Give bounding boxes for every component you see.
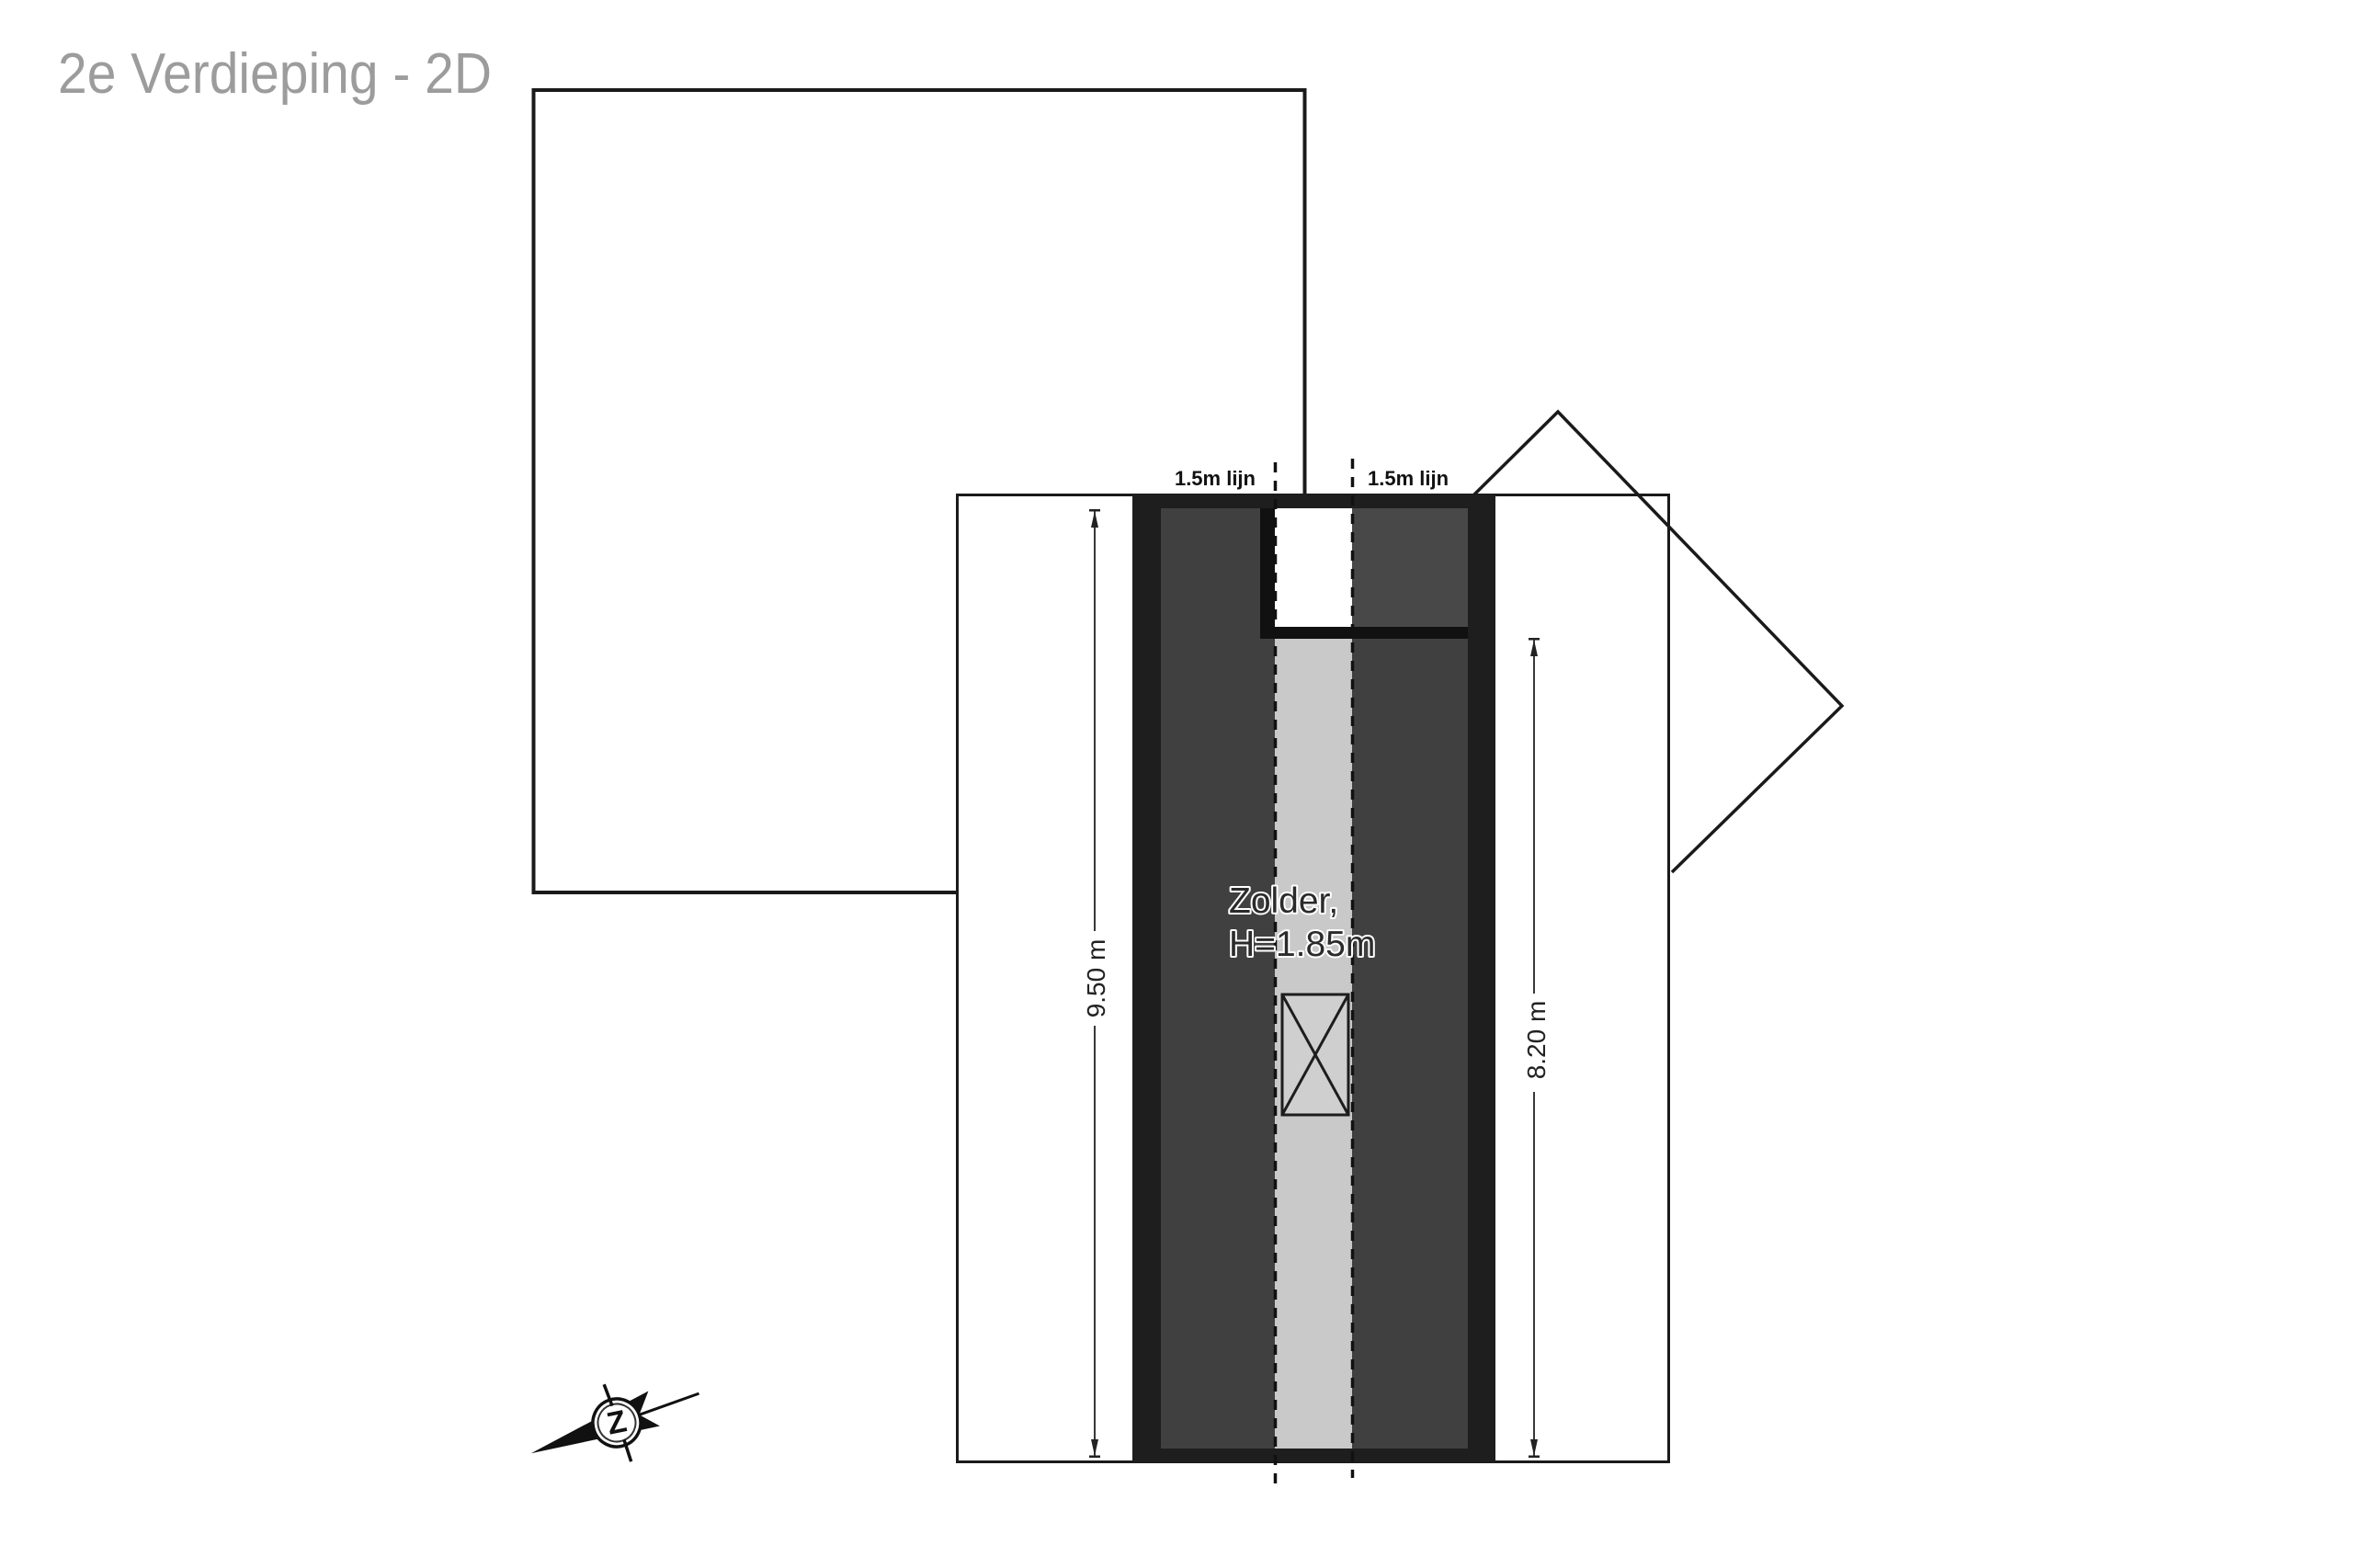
svg-text:H=1.85m: H=1.85m — [1229, 925, 1375, 964]
svg-text:Zolder,: Zolder, — [1229, 881, 1338, 921]
svg-text:1.5m lijn: 1.5m lijn — [1368, 467, 1449, 490]
svg-text:2e Verdieping - 2D: 2e Verdieping - 2D — [58, 42, 492, 106]
svg-text:1.5m lijn: 1.5m lijn — [1175, 467, 1256, 490]
svg-text:9.50 m: 9.50 m — [1082, 939, 1110, 1018]
svg-text:8.20 m: 8.20 m — [1522, 1001, 1551, 1080]
